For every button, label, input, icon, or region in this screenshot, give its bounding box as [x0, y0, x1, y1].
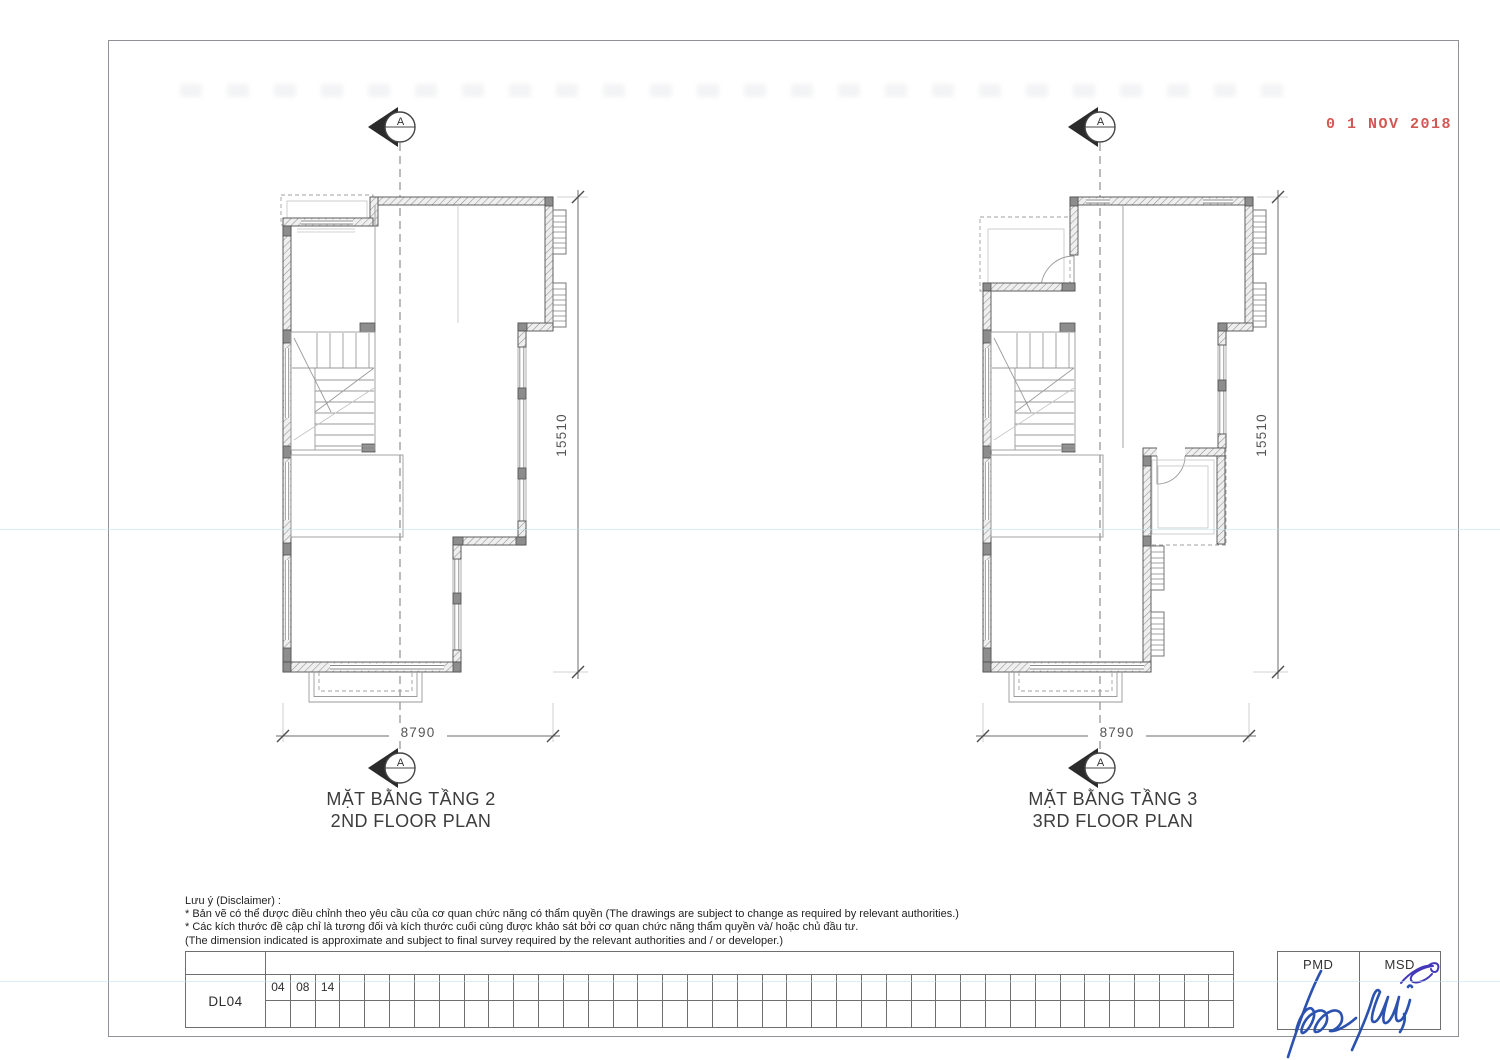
revision-cell	[986, 1001, 1011, 1027]
plan-title-en: 3RD FLOOR PLAN	[963, 811, 1263, 833]
revision-cell	[465, 975, 490, 1000]
section-marker-icon	[368, 107, 415, 147]
revision-cell	[787, 975, 812, 1000]
interior-partitions	[291, 205, 458, 537]
revision-header-row	[266, 952, 1233, 975]
revision-cell	[1209, 1001, 1233, 1027]
revision-cell	[1061, 975, 1086, 1000]
revision-cell	[1185, 1001, 1210, 1027]
revision-cell	[539, 1001, 564, 1027]
revision-cell	[812, 1001, 837, 1027]
revision-cell	[1209, 975, 1233, 1000]
revision-cell	[1160, 975, 1185, 1000]
revision-cell	[539, 975, 564, 1000]
disclaimer-line: (The dimension indicated is approximate …	[185, 935, 959, 948]
revision-cell	[589, 1001, 614, 1027]
revision-cell	[489, 1001, 514, 1027]
date-stamp: 0 1 NOV 2018	[1326, 116, 1452, 133]
revision-cell	[663, 1001, 688, 1027]
disclaimer-line: * Các kích thước đề cập chỉ là tương đối…	[185, 921, 959, 934]
section-marker-letter: A	[1097, 116, 1105, 128]
approval-cell-msd: MSD	[1360, 952, 1441, 1029]
revision-cell	[614, 975, 639, 1000]
revision-cell	[440, 1001, 465, 1027]
balcony	[309, 672, 422, 702]
revision-cell	[340, 975, 365, 1000]
revision-cell: 14	[316, 975, 341, 1000]
revision-cell	[912, 975, 937, 1000]
plan-title-2nd: MẶT BẰNG TẦNG 2 2ND FLOOR PLAN	[261, 789, 561, 832]
dimension-horizontal: 8790	[276, 703, 560, 742]
revision-cell	[614, 1001, 639, 1027]
dim-label-width: 8790	[401, 725, 436, 740]
sheet-code-column: DL04	[186, 952, 266, 1027]
dimension-vertical: 15510	[553, 190, 588, 679]
revision-cell	[812, 975, 837, 1000]
revision-cell	[936, 1001, 961, 1027]
staircase	[991, 332, 1075, 450]
revision-cell	[638, 975, 663, 1000]
disclaimer-heading: Lưu ý (Disclaimer) :	[185, 895, 959, 908]
section-marker-letter: A	[397, 757, 405, 769]
revision-grid: 040814	[266, 952, 1233, 1027]
revision-cell	[936, 975, 961, 1000]
disclaimer: Lưu ý (Disclaimer) : * Bản vẽ có thể đượ…	[185, 895, 959, 948]
dimension-vertical: 15510	[1253, 190, 1288, 679]
revision-cell	[1135, 1001, 1160, 1027]
balcony	[1009, 672, 1122, 702]
revision-cell	[713, 1001, 738, 1027]
revision-cell	[564, 1001, 589, 1027]
revision-cell	[390, 1001, 415, 1027]
revision-cell	[1185, 975, 1210, 1000]
revision-cell	[887, 1001, 912, 1027]
revision-row-1: 040814	[266, 975, 1233, 1001]
revision-cell	[564, 975, 589, 1000]
floor-plan-3rd: A A	[976, 107, 1288, 788]
revision-cell	[1110, 975, 1135, 1000]
section-marker-icon	[1068, 748, 1115, 788]
revision-cell	[1085, 975, 1110, 1000]
revision-cell	[1110, 1001, 1135, 1027]
revision-cell: 04	[266, 975, 291, 1000]
dimension-horizontal: 8790	[976, 703, 1256, 742]
approval-cell-pmd: PMD	[1278, 952, 1360, 1029]
plan-title-3rd: MẶT BẰNG TẦNG 3 3RD FLOOR PLAN	[963, 789, 1263, 832]
disclaimer-line: * Bản vẽ có thể được điều chỉnh theo yêu…	[185, 908, 959, 921]
revision-cell	[1160, 1001, 1185, 1027]
window-bay-icon	[545, 197, 566, 330]
revision-cell	[1036, 1001, 1061, 1027]
revision-cell	[787, 1001, 812, 1027]
plan-title-en: 2ND FLOOR PLAN	[261, 811, 561, 833]
revision-cell	[291, 1001, 316, 1027]
section-marker-icon	[368, 748, 415, 788]
revision-cell	[316, 1001, 341, 1027]
dim-label-height: 15510	[554, 413, 569, 457]
revision-cell	[1061, 1001, 1086, 1027]
dim-label-height: 15510	[1254, 413, 1269, 457]
revision-cell	[390, 975, 415, 1000]
revision-cell	[986, 975, 1011, 1000]
revision-cell	[514, 1001, 539, 1027]
plan-title-vi: MẶT BẰNG TẦNG 2	[261, 789, 561, 811]
revision-cell	[465, 1001, 490, 1027]
window-bay-icon	[1245, 197, 1266, 330]
sheet-code-header-cell	[186, 952, 265, 975]
revision-cell	[440, 975, 465, 1000]
revision-cell	[862, 975, 887, 1000]
revision-cell	[738, 1001, 763, 1027]
revision-cell	[415, 975, 440, 1000]
approval-box: PMD MSD	[1277, 951, 1441, 1030]
revision-cell	[638, 1001, 663, 1027]
staircase	[291, 332, 375, 450]
section-marker-letter: A	[1097, 757, 1105, 769]
revision-cell	[365, 975, 390, 1000]
dim-label-width: 8790	[1100, 725, 1135, 740]
revision-cell	[837, 975, 862, 1000]
revision-cell	[738, 975, 763, 1000]
revision-cell	[489, 975, 514, 1000]
revision-cell	[266, 1001, 291, 1027]
revision-cell	[837, 1001, 862, 1027]
revision-cell: 08	[291, 975, 316, 1000]
plan-title-vi: MẶT BẰNG TẦNG 3	[963, 789, 1263, 811]
revision-cell	[365, 1001, 390, 1027]
revision-cell	[887, 975, 912, 1000]
revision-cell	[1011, 1001, 1036, 1027]
sheet-code: DL04	[186, 975, 265, 1027]
revision-cell	[663, 975, 688, 1000]
revision-cell	[912, 1001, 937, 1027]
revision-cell	[862, 1001, 887, 1027]
floor-plan-2nd: A A	[276, 107, 588, 788]
revision-cell	[961, 975, 986, 1000]
revision-cell	[415, 1001, 440, 1027]
section-marker-icon	[1068, 107, 1115, 147]
revision-cell	[763, 1001, 788, 1027]
revision-cell	[688, 1001, 713, 1027]
approval-label-pmd: PMD	[1303, 957, 1333, 972]
revision-cell	[1011, 975, 1036, 1000]
revision-cell	[688, 975, 713, 1000]
revision-cell	[1135, 975, 1160, 1000]
revision-cell	[514, 975, 539, 1000]
revision-cell	[763, 975, 788, 1000]
revision-row-2	[266, 1001, 1233, 1027]
exterior-walls	[281, 195, 566, 672]
revision-table: DL04 040814	[185, 951, 1234, 1028]
revision-cell	[1085, 1001, 1110, 1027]
revision-cell	[589, 975, 614, 1000]
revision-cell	[713, 975, 738, 1000]
revision-cell	[961, 1001, 986, 1027]
section-marker-letter: A	[397, 116, 405, 128]
revision-cell	[340, 1001, 365, 1027]
approval-label-msd: MSD	[1385, 957, 1415, 972]
revision-cell	[1036, 975, 1061, 1000]
